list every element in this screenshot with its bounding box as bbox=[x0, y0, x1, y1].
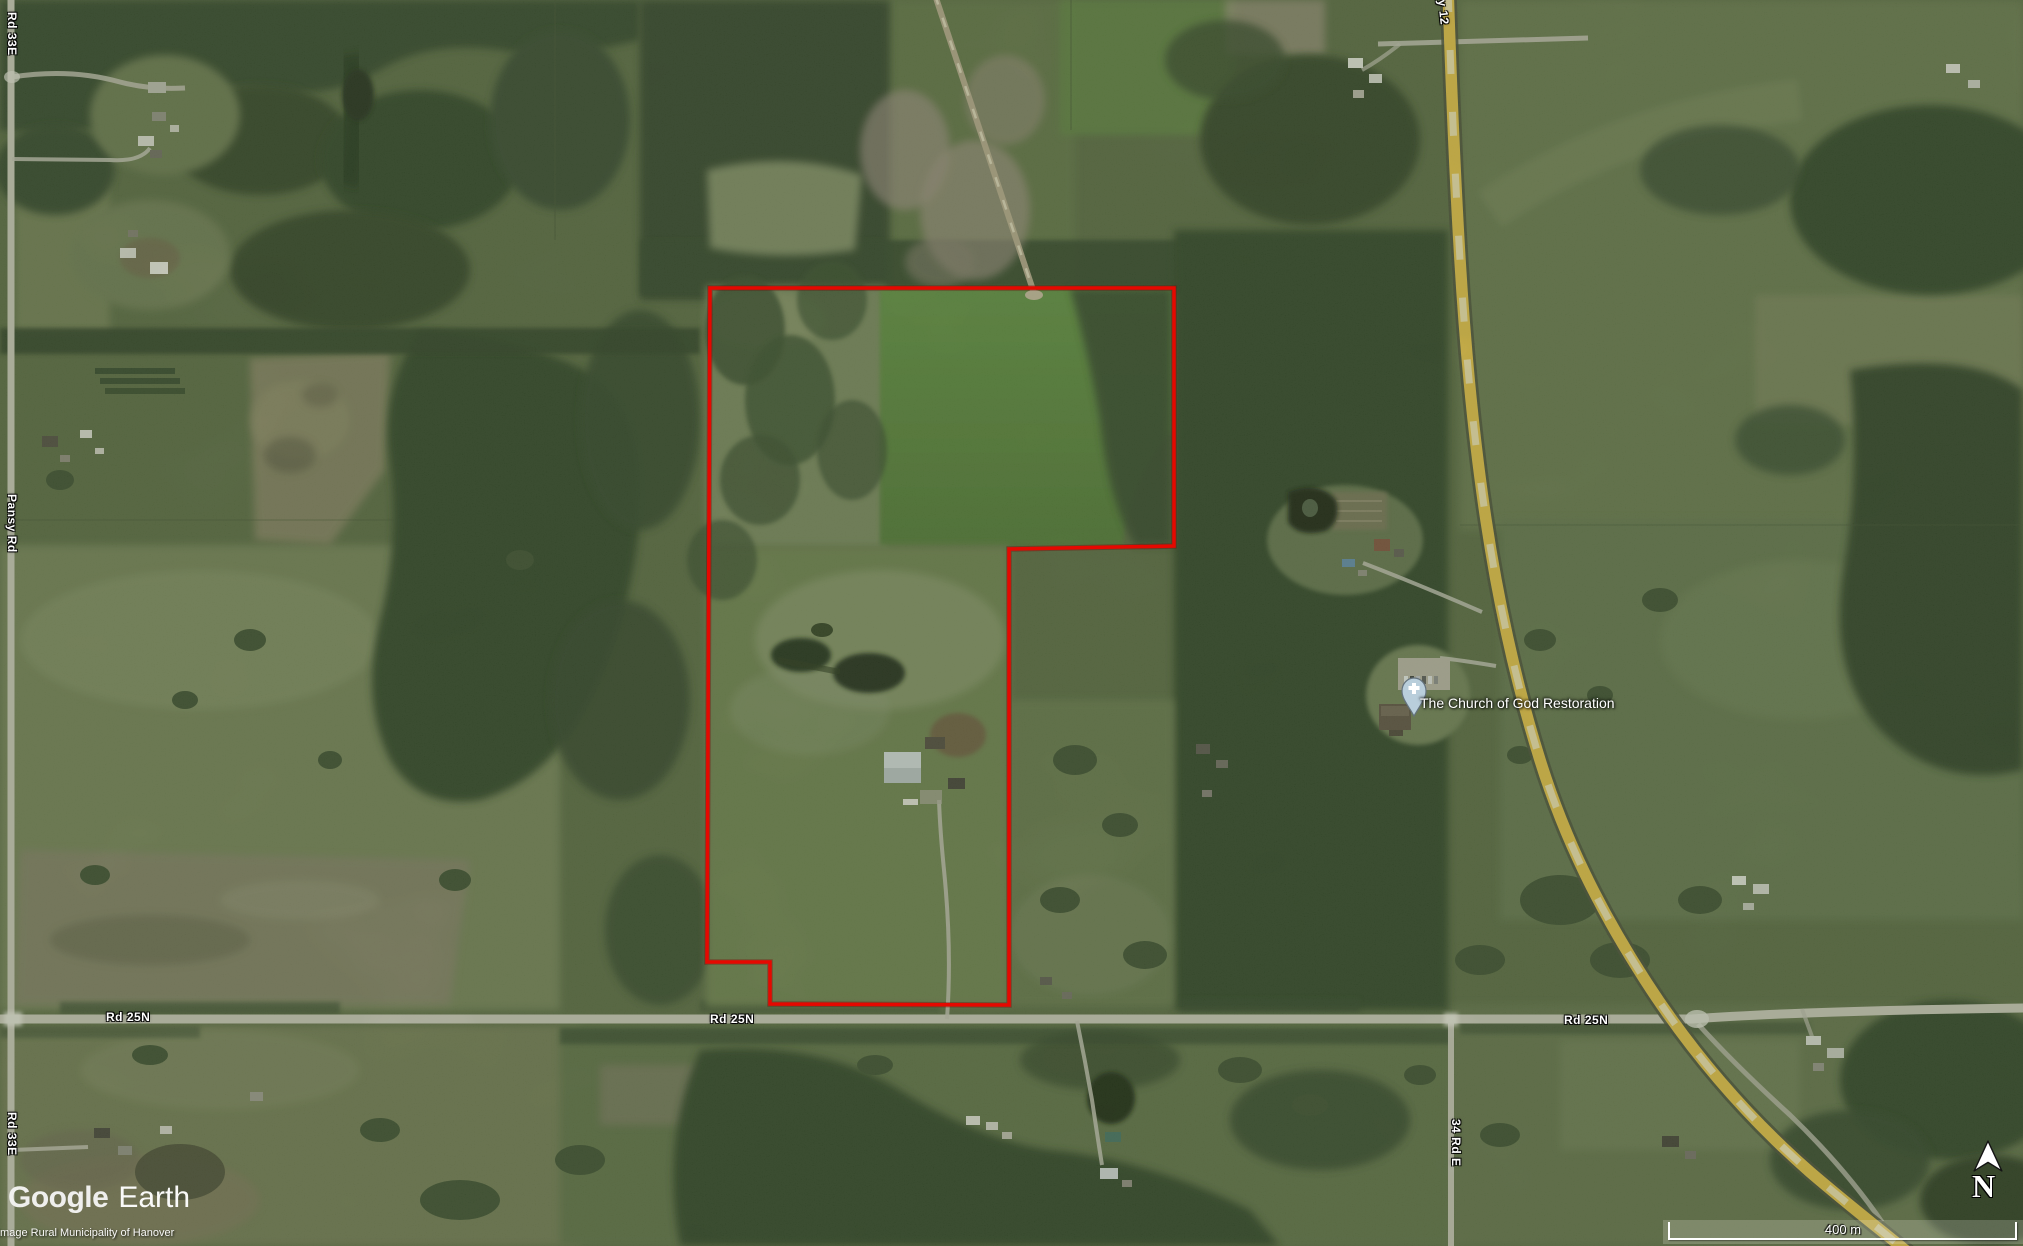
road-label-rd33e-north: Rd 33E bbox=[5, 12, 19, 56]
imagery-attribution: Image Rural Municipality of Hanover bbox=[0, 1227, 174, 1239]
north-letter: N bbox=[1972, 1168, 1995, 1205]
google-earth-viewport[interactable]: Rd 33E Pansy Rd Rd 33E Rd 25N Rd 25N Rd … bbox=[0, 0, 2023, 1246]
road-label-pansy-rd: Pansy Rd bbox=[5, 494, 19, 553]
scale-bar-label: 400 m bbox=[1663, 1222, 2023, 1237]
google-earth-logo-google: Google bbox=[8, 1181, 108, 1214]
scale-bar: 400 m bbox=[1663, 1220, 2023, 1244]
church-poi-label[interactable]: The Church of God Restoration bbox=[1420, 695, 1615, 711]
google-earth-logo-earth: Earth bbox=[118, 1181, 190, 1214]
road-label-rd33e-south: Rd 33E bbox=[5, 1112, 19, 1156]
road-label-rd25n-east: Rd 25N bbox=[1564, 1013, 1608, 1027]
north-indicator: N bbox=[1966, 1140, 2012, 1210]
road-label-34-rd-e: 34 Rd E bbox=[1449, 1119, 1463, 1167]
satellite-map[interactable] bbox=[0, 0, 2023, 1246]
road-label-rd25n-west: Rd 25N bbox=[106, 1010, 150, 1024]
google-earth-logo: GoogleEarth bbox=[8, 1181, 190, 1215]
road-label-rd25n-center: Rd 25N bbox=[710, 1012, 754, 1026]
